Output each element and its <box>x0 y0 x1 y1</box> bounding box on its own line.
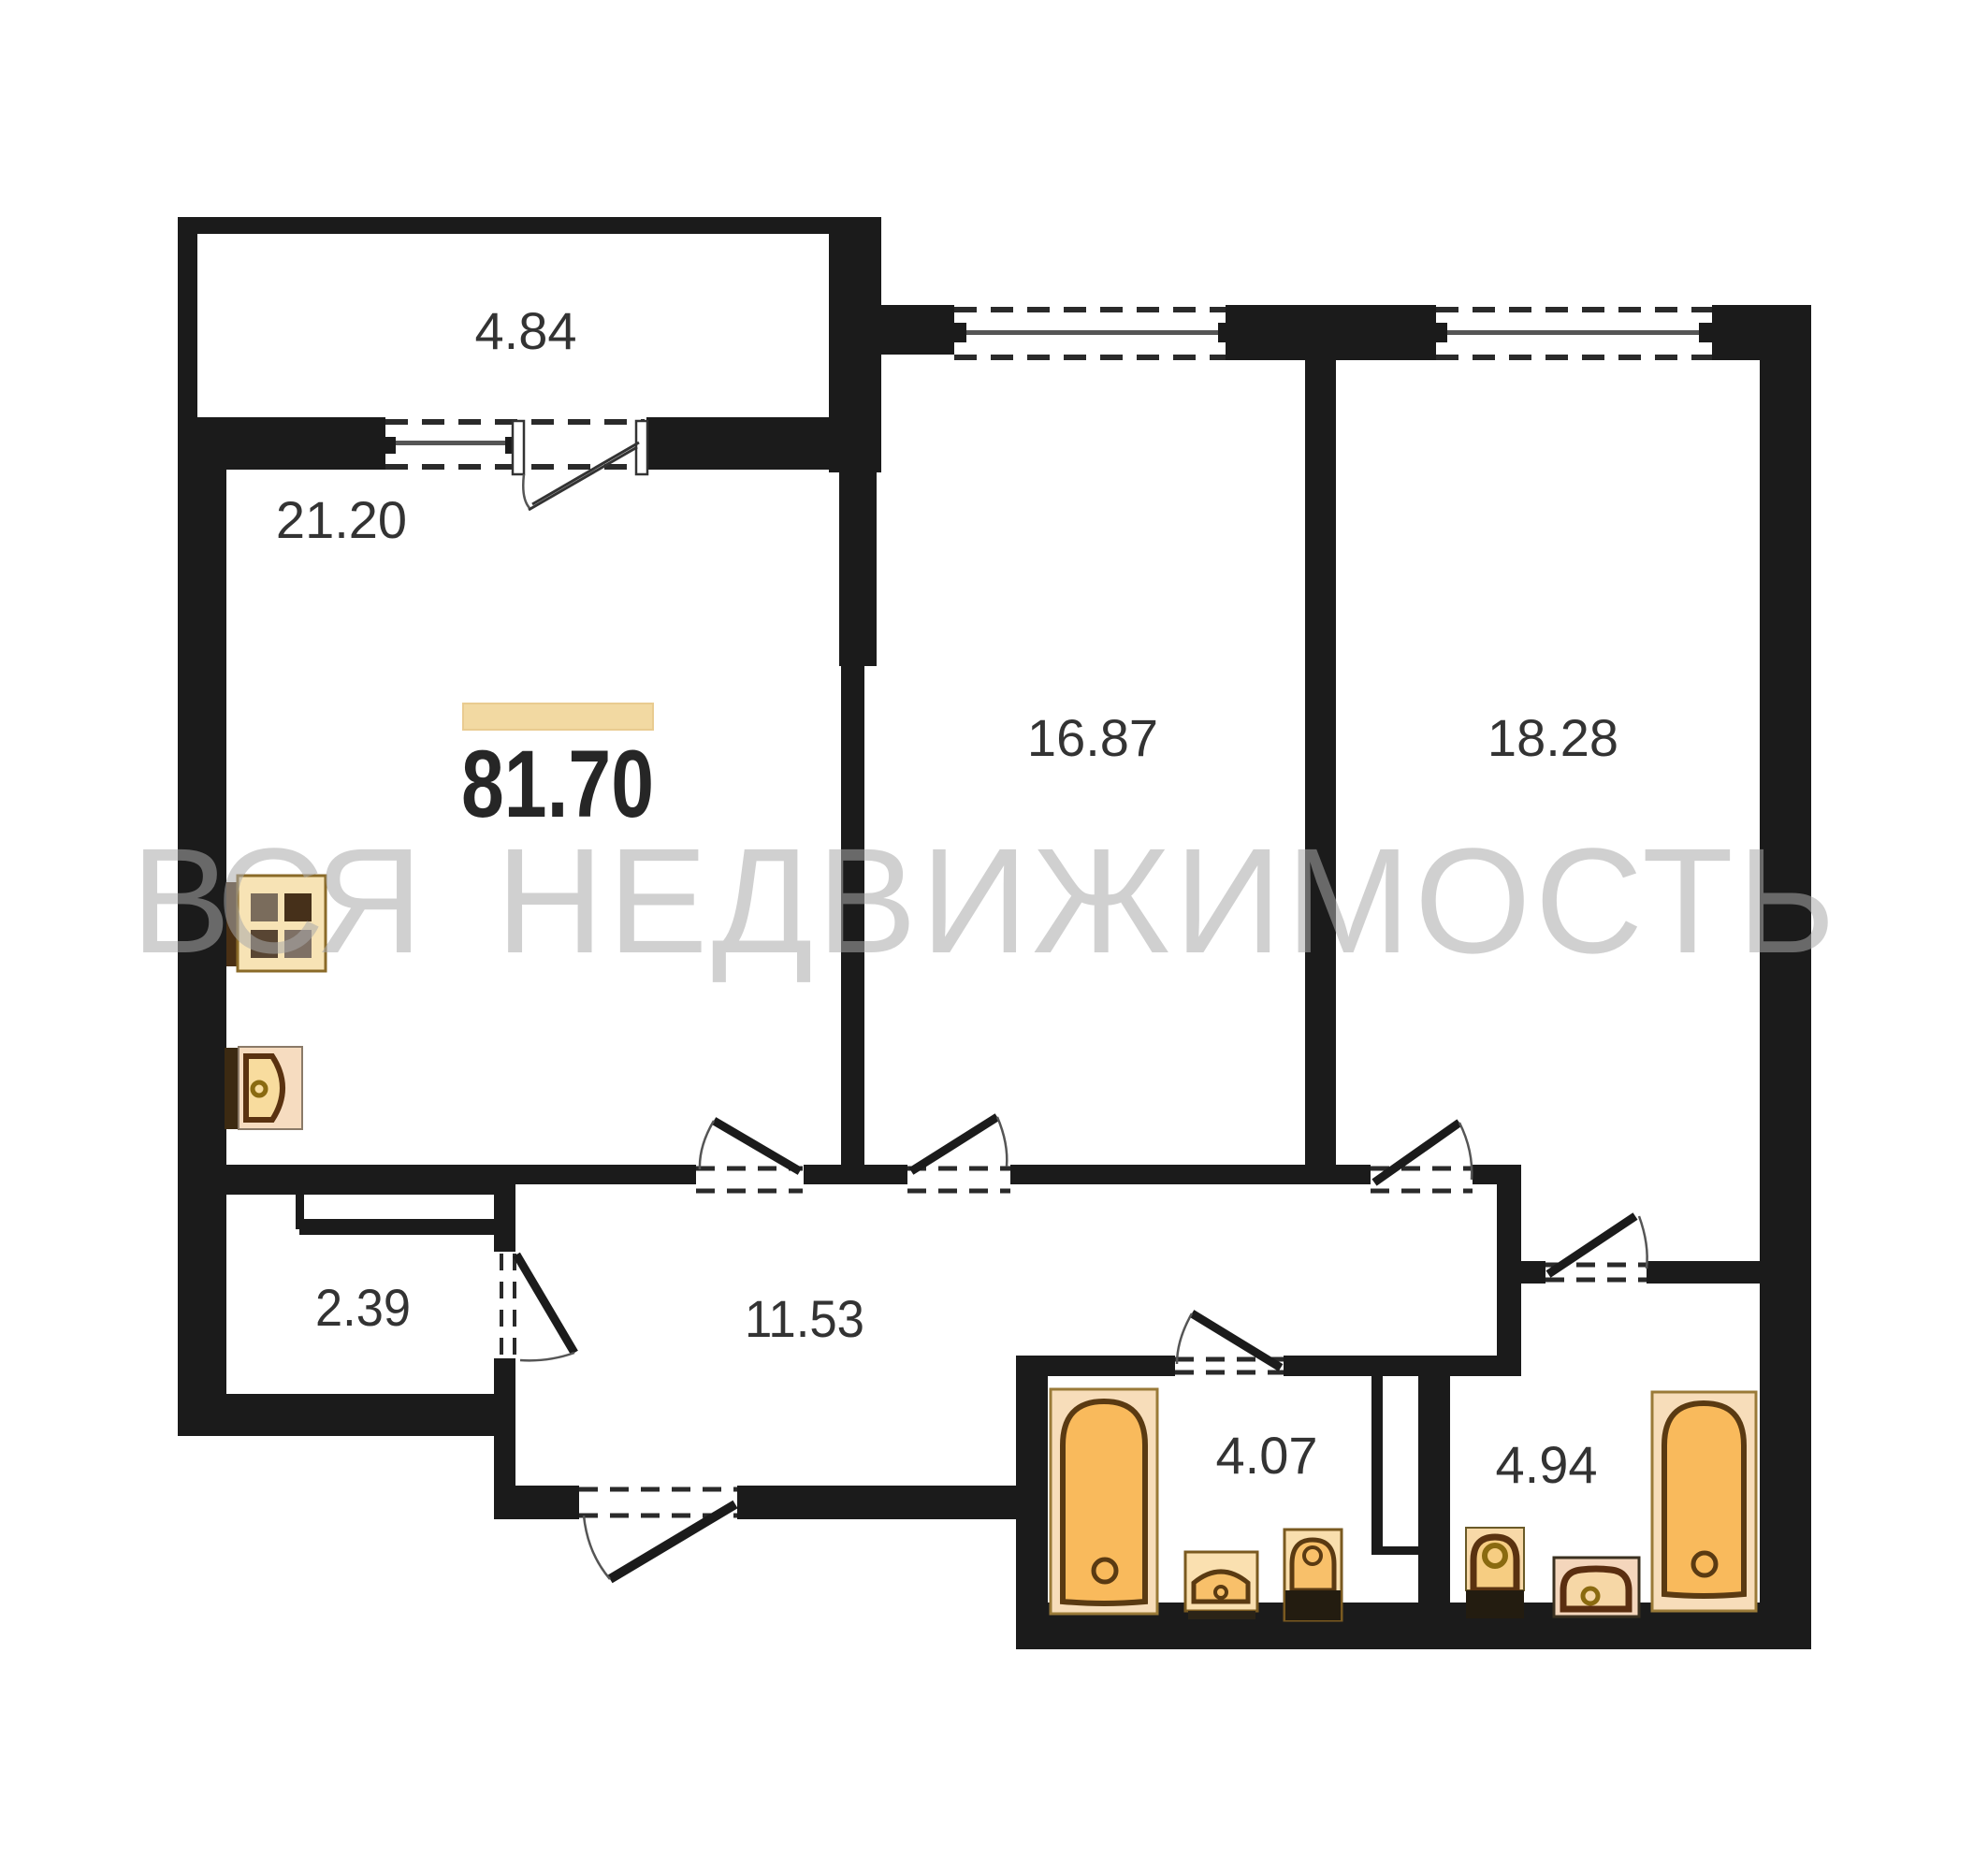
svg-text:ВСЯ: ВСЯ <box>131 817 423 984</box>
svg-text:2.39: 2.39 <box>315 1278 411 1337</box>
svg-text:18.28: 18.28 <box>1487 708 1618 767</box>
svg-text:11.53: 11.53 <box>745 1289 864 1348</box>
svg-text:16.87: 16.87 <box>1027 708 1158 767</box>
svg-text:81.70: 81.70 <box>461 731 654 837</box>
svg-text:4.07: 4.07 <box>1216 1426 1318 1485</box>
svg-text:4.84: 4.84 <box>475 301 577 360</box>
svg-text:21.20: 21.20 <box>276 490 407 549</box>
svg-text:НЕДВИЖИМОСТЬ: НЕДВИЖИМОСТЬ <box>496 817 1836 984</box>
svg-text:4.94: 4.94 <box>1496 1435 1598 1494</box>
